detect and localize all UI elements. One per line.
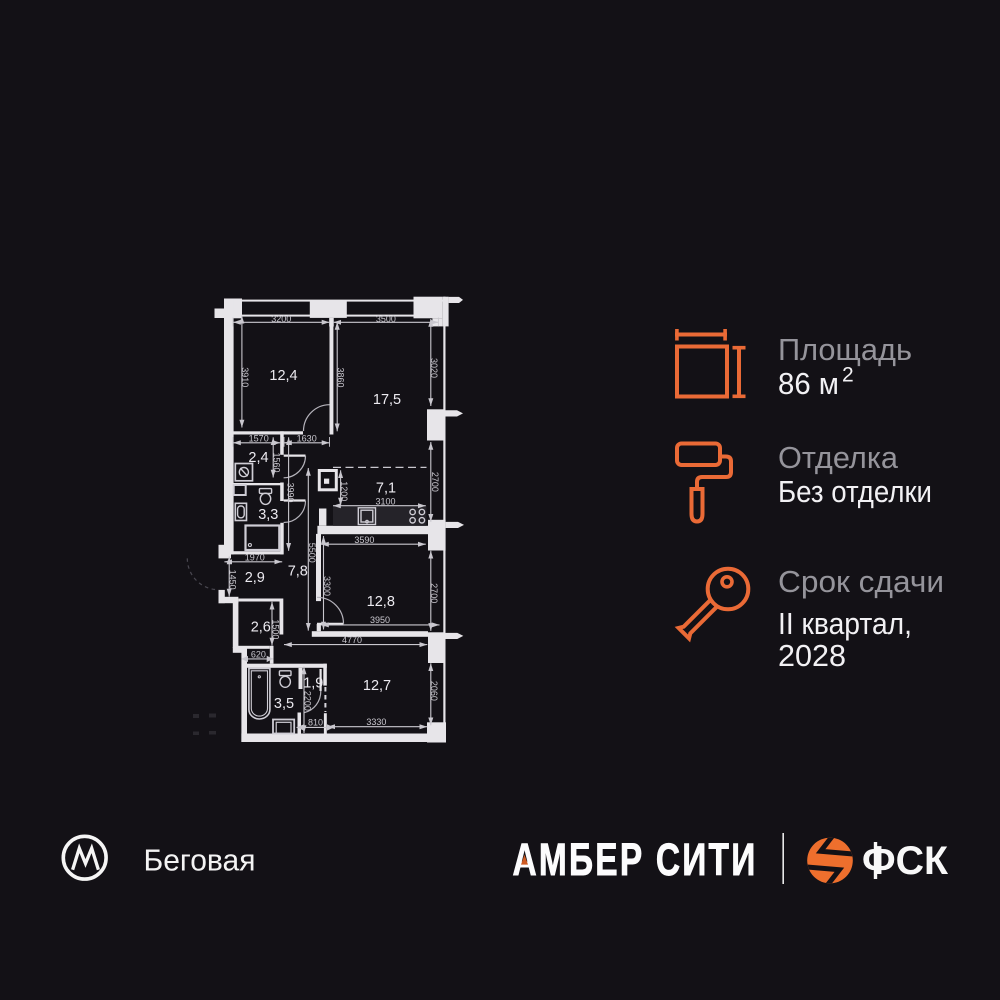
svg-text:2: 2	[842, 364, 854, 387]
svg-text:Площадь: Площадь	[778, 333, 912, 367]
svg-text:Отделка: Отделка	[778, 441, 898, 475]
svg-text:АМБЕР СИТИ: АМБЕР СИТИ	[513, 834, 758, 885]
svg-text:1570: 1570	[249, 433, 269, 443]
svg-text:1200: 1200	[339, 481, 349, 501]
svg-text:2,6: 2,6	[251, 620, 271, 636]
svg-text:2028: 2028	[778, 639, 846, 673]
svg-text:3330: 3330	[366, 717, 386, 727]
svg-text:1970: 1970	[245, 552, 265, 562]
svg-text:3950: 3950	[370, 615, 390, 625]
svg-text:3990: 3990	[286, 482, 296, 502]
svg-text:3200: 3200	[271, 314, 291, 324]
svg-text:3300: 3300	[322, 576, 332, 596]
svg-text:3,3: 3,3	[258, 507, 278, 523]
svg-text:Срок сдачи: Срок сдачи	[778, 565, 944, 599]
svg-text:1630: 1630	[297, 434, 317, 444]
svg-text:3500: 3500	[376, 314, 396, 324]
svg-text:2,9: 2,9	[245, 570, 265, 586]
svg-text:12,8: 12,8	[367, 594, 395, 610]
svg-text:3910: 3910	[240, 367, 250, 387]
svg-text:2700: 2700	[429, 583, 439, 603]
svg-text:620: 620	[251, 649, 266, 659]
svg-text:12,7: 12,7	[363, 678, 391, 694]
svg-text:1450: 1450	[228, 570, 238, 590]
svg-text:II квартал,: II квартал,	[778, 607, 912, 641]
svg-text:3020: 3020	[429, 358, 439, 378]
svg-text:1,9: 1,9	[303, 676, 323, 692]
svg-text:2060: 2060	[429, 681, 439, 701]
svg-text:7,8: 7,8	[288, 564, 308, 580]
svg-text:1560: 1560	[272, 452, 282, 472]
svg-text:86 м: 86 м	[778, 367, 839, 401]
svg-text:3860: 3860	[336, 367, 346, 387]
svg-text:12,4: 12,4	[269, 368, 297, 384]
svg-text:2,4: 2,4	[248, 450, 268, 466]
svg-text:3,5: 3,5	[274, 696, 294, 712]
svg-text:3100: 3100	[375, 496, 395, 506]
svg-text:5500: 5500	[307, 543, 317, 563]
svg-text:17,5: 17,5	[373, 392, 401, 408]
svg-text:1500: 1500	[270, 619, 280, 639]
svg-text:Беговая: Беговая	[144, 844, 256, 878]
svg-text:4770: 4770	[342, 635, 362, 645]
svg-text:2200: 2200	[302, 691, 312, 711]
svg-text:3590: 3590	[354, 535, 374, 545]
svg-text:810: 810	[308, 718, 323, 728]
svg-text:2700: 2700	[430, 472, 440, 492]
svg-text:Без отделки: Без отделки	[778, 475, 932, 509]
svg-text:7,1: 7,1	[376, 481, 396, 497]
